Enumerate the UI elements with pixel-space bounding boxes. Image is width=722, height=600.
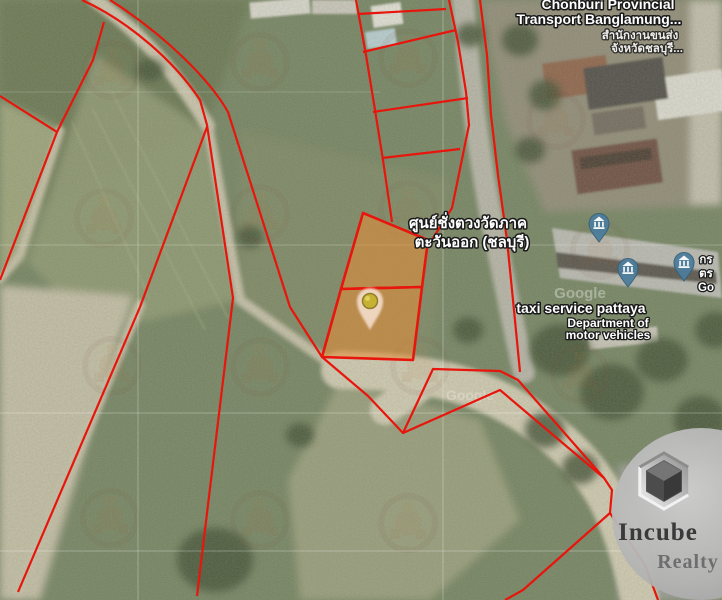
label-edge-clipped-line1: กร [699,254,713,266]
label-edge-clipped-line3: Go [698,282,714,294]
label-transport-office-th-line2: จังหวัดชลบุรี... [611,42,683,56]
pin-center-dot [363,294,378,309]
label-weights-measures-line2[interactable]: ตะวันออก (ชลบุรี) [415,234,530,252]
satellite-map-view[interactable]: Google Google Chonburi P [0,0,722,600]
label-taxi-service[interactable]: taxi service pattaya [516,300,645,316]
label-transport-office-th-line1: สำนักงานขนส่ง [602,28,679,42]
label-weights-measures-line1[interactable]: ศูนย์ชั่งตวงวัดภาค [409,212,527,233]
logo-text-incube: Incube [618,519,698,546]
label-edge-clipped-line2: ตร [699,268,713,280]
pin-dot-highlight [365,296,370,301]
label-dmv-line2: motor vehicles [566,328,651,342]
logo-text-realty: Realty [657,551,719,573]
label-transport-office-en-line2[interactable]: Transport Banglamung... [517,11,682,27]
incube-cube-icon [640,453,688,509]
